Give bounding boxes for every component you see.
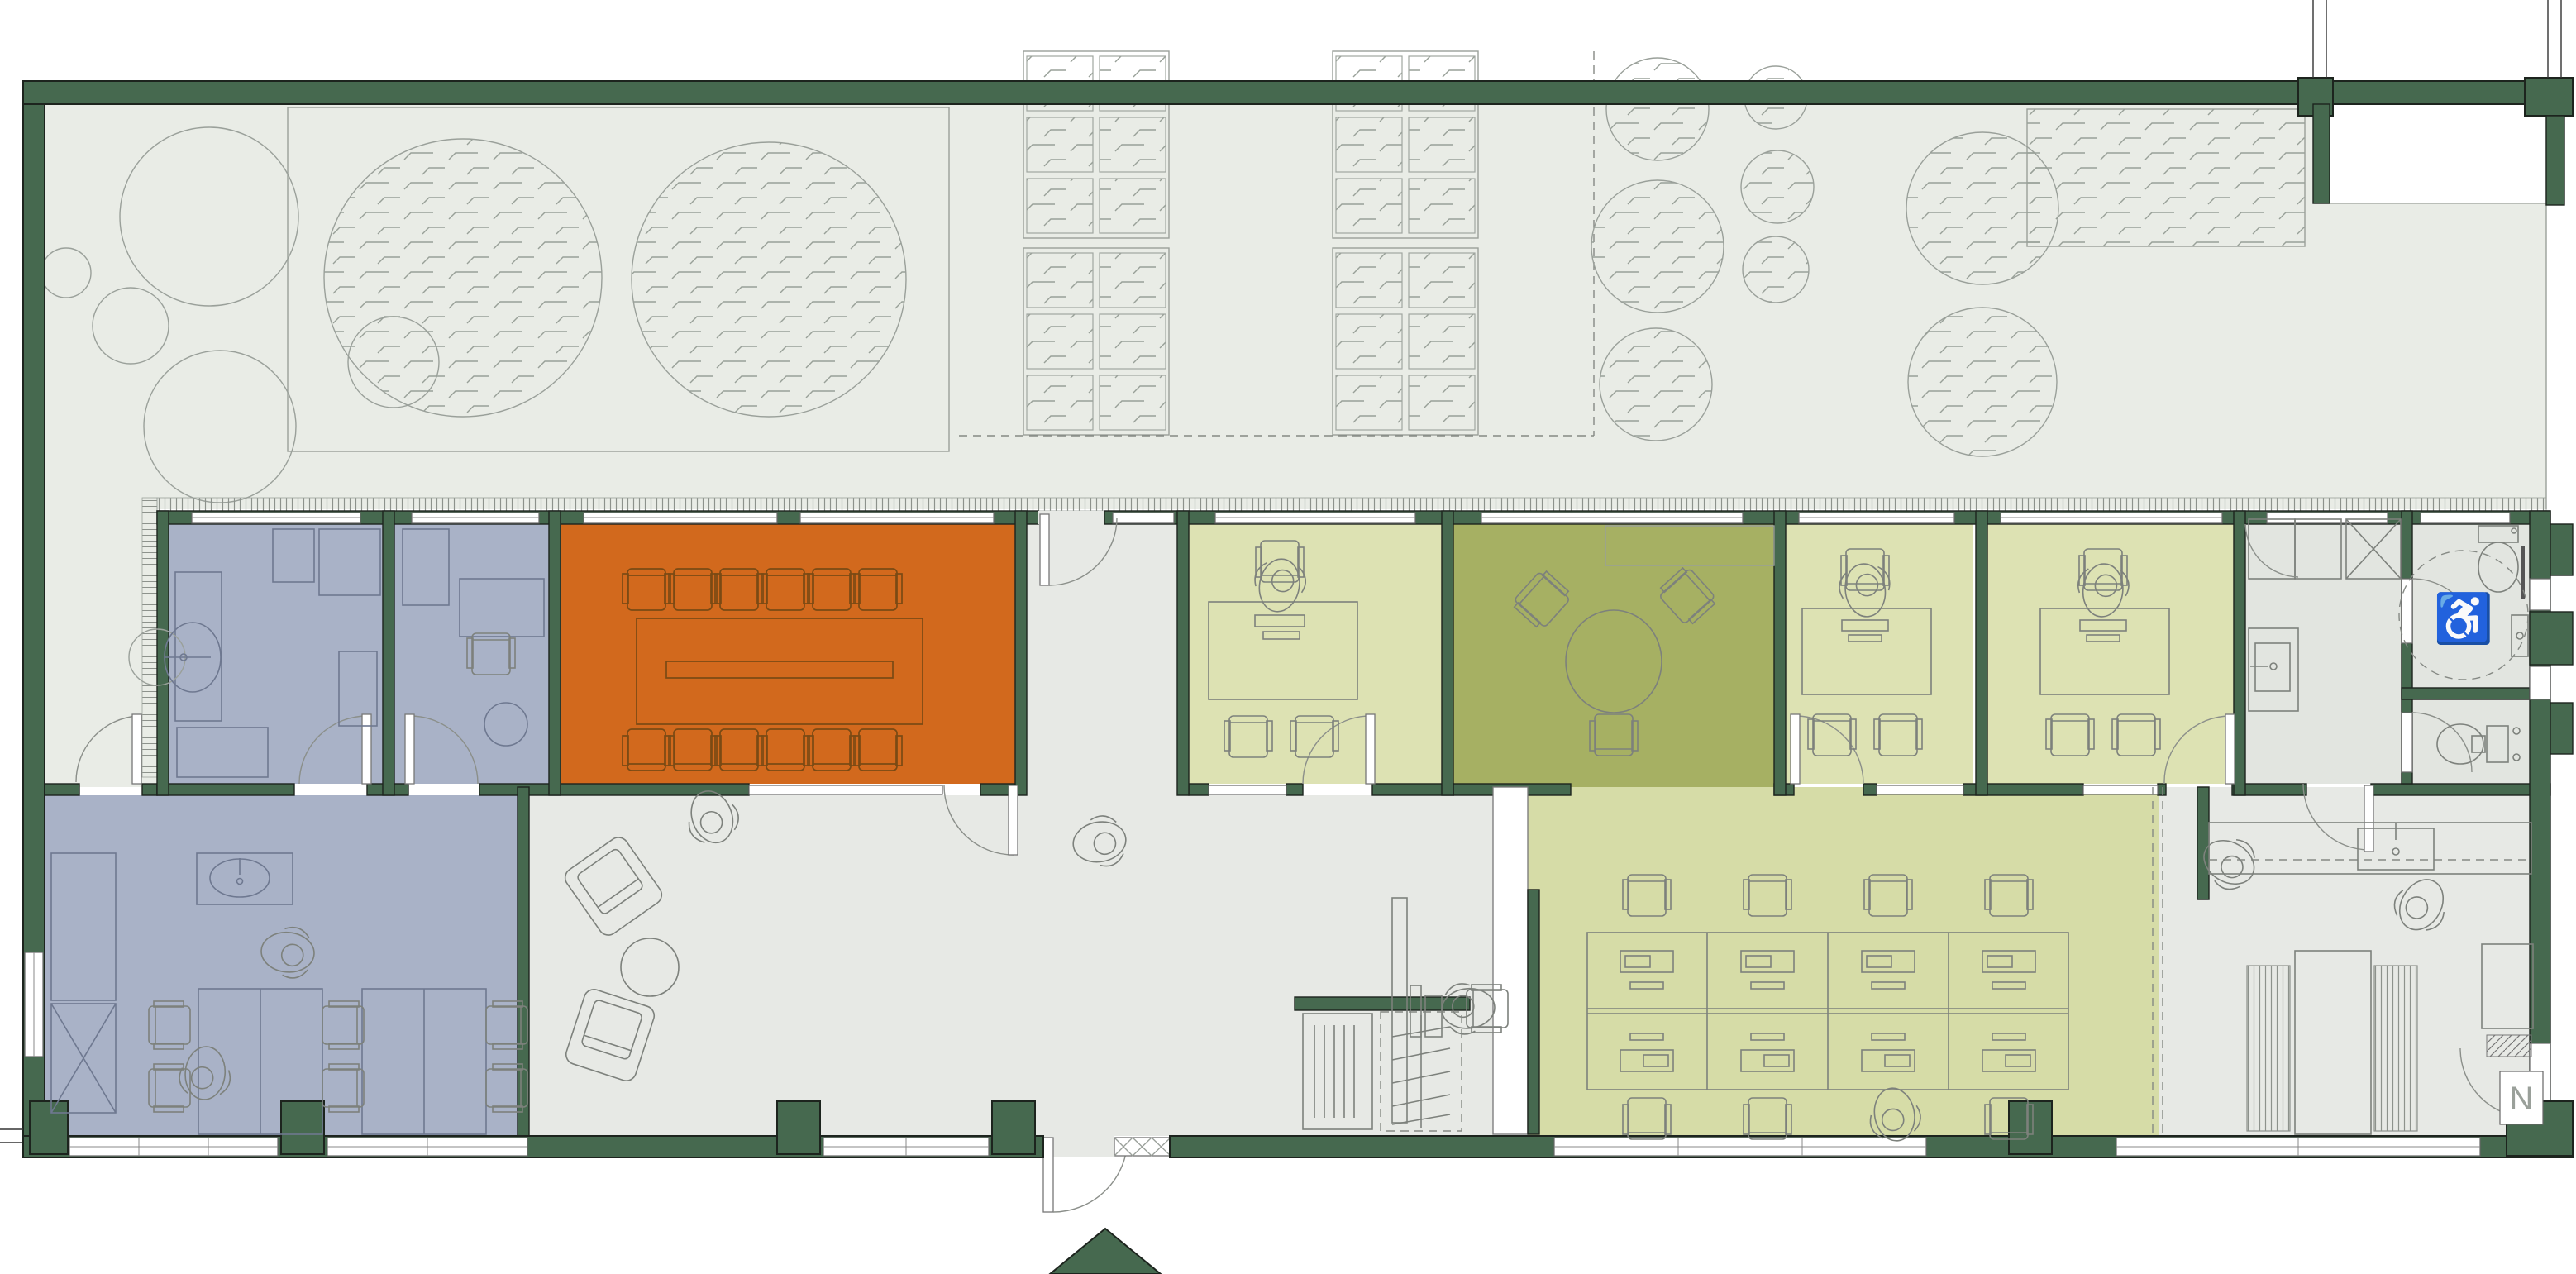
wheelchair-icon: ♿: [2434, 591, 2493, 646]
window: [2421, 513, 2510, 523]
bench: [2374, 966, 2417, 1131]
window: [2267, 513, 2388, 523]
floor-plan: ♿ N: [0, 0, 2576, 1274]
column: [30, 1101, 68, 1154]
window: [1215, 513, 1415, 523]
window: [2083, 785, 2158, 794]
window: [800, 513, 994, 523]
window: [2001, 513, 2222, 523]
column: [777, 1101, 820, 1154]
partition-wall: [1493, 787, 1528, 1134]
wall-stub: [2313, 104, 2330, 203]
window: [1481, 513, 1743, 523]
storage-room-floor: [2245, 524, 2402, 784]
room-floors: [45, 524, 2530, 1157]
floor-plan-canvas: ♿ N: [0, 0, 2576, 1274]
deck-strip-horizontal: [157, 498, 2546, 511]
hatch-threshold: [2487, 1035, 2531, 1057]
column: [281, 1101, 324, 1154]
window: [1554, 1138, 1926, 1156]
window: [69, 1138, 278, 1156]
svg-text:N: N: [2510, 1081, 2534, 1117]
office-3-floor: [1987, 524, 2234, 784]
north-wall: [23, 81, 2573, 104]
entrance-mat: [1114, 1138, 1171, 1156]
window: [327, 1138, 527, 1156]
window: [1877, 785, 1963, 794]
column: [2009, 1101, 2052, 1154]
window: [1209, 785, 1286, 794]
window: [584, 513, 777, 523]
entrance-arrow-icon: [1050, 1229, 1161, 1274]
window: [749, 785, 942, 794]
bench: [2247, 966, 2290, 1131]
window: [2116, 1138, 2480, 1156]
terrace-notch: [2330, 104, 2546, 203]
column: [992, 1101, 1035, 1154]
planting-bed-rect: [2027, 109, 2305, 246]
window: [412, 513, 539, 523]
wall-stub: [2546, 116, 2564, 205]
tree-icon: [324, 139, 602, 417]
deck-strip-vertical: [142, 498, 157, 777]
window-band-top: [192, 513, 2510, 523]
entrance-door-leaf: [1043, 1138, 1053, 1212]
column: [2525, 78, 2573, 116]
open-office-floor: [1528, 787, 2159, 1136]
entrance-threshold: [1043, 1136, 1114, 1157]
window: [823, 1138, 989, 1156]
wc-floor: [2412, 699, 2530, 784]
north-sign: N: [2500, 1071, 2543, 1124]
meeting-room-floor: [1453, 524, 1774, 787]
tree-icon: [632, 142, 906, 417]
window: [1799, 513, 1954, 523]
kitchen-floor: [2159, 787, 2530, 1136]
window: [1113, 513, 1174, 523]
window: [192, 513, 360, 523]
blue-room-a-floor: [169, 524, 383, 784]
